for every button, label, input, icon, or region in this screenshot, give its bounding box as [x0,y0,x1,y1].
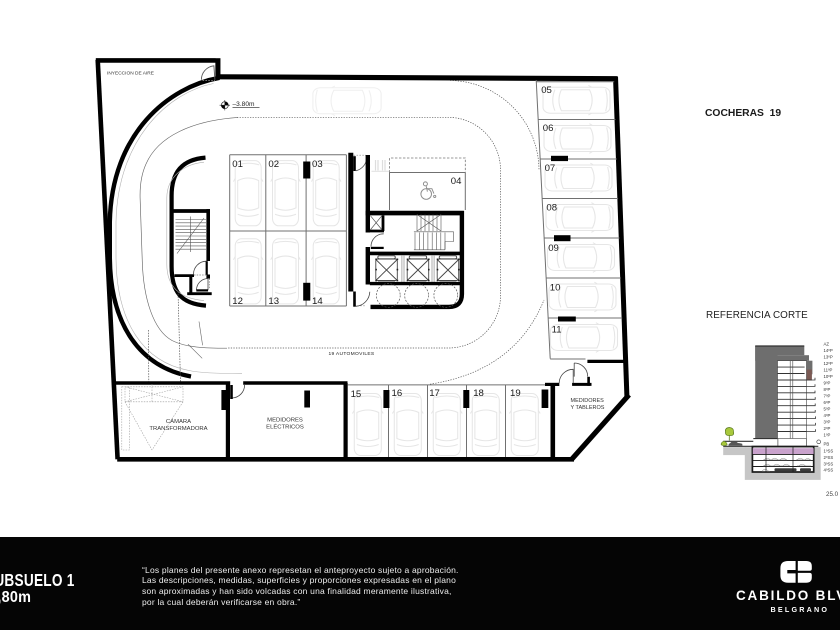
svg-text:08: 08 [546,203,557,214]
svg-text:INYECCION DE AIRE: INYECCION DE AIRE [107,71,154,77]
svg-text:25.0: 25.0 [826,491,839,498]
svg-text:MEDIDORES: MEDIDORES [571,398,605,404]
svg-text:CÁMARA: CÁMARA [166,418,191,425]
svg-text:18: 18 [473,388,484,399]
svg-text:ELÉCTRICOS: ELÉCTRICOS [266,424,304,431]
svg-text:03: 03 [312,159,323,170]
svg-text:TRANSFORMADORA: TRANSFORMADORA [149,426,207,432]
svg-text:7ºP: 7ºP [824,394,831,399]
svg-text:16: 16 [392,388,403,399]
svg-text:05: 05 [541,85,552,96]
svg-text:10: 10 [550,283,561,294]
svg-text:1ºP: 1ºP [824,433,831,438]
svg-text:9ºP: 9ºP [824,381,831,386]
svg-text:01: 01 [232,159,243,170]
svg-text:MEDIDORES: MEDIDORES [267,418,303,424]
svg-text:1ºSS: 1ºSS [824,449,834,454]
svg-text:13ºP: 13ºP [824,355,833,360]
svg-text:3ºP: 3ºP [824,420,831,425]
svg-text:3ºSS: 3ºSS [824,461,834,466]
svg-text:11: 11 [552,325,562,336]
svg-text:–3.80m: –3.80m [233,101,256,108]
svg-text:12ºP: 12ºP [824,361,833,366]
svg-text:19: 19 [510,388,521,399]
svg-text:2ºP: 2ºP [824,426,831,431]
svg-text:14: 14 [312,296,323,307]
svg-text:09: 09 [548,243,559,254]
svg-text:Y TABLEROS: Y TABLEROS [571,405,605,411]
svg-text:02: 02 [268,159,279,170]
svg-text:2ºSS: 2ºSS [824,455,834,460]
svg-text:AZ: AZ [824,342,830,347]
svg-text:13: 13 [268,296,279,307]
svg-text:4ºSS: 4ºSS [824,467,834,472]
svg-text:6ºP: 6ºP [824,400,831,405]
svg-text:14ºP: 14ºP [824,348,833,353]
svg-text:06: 06 [543,123,554,134]
svg-text:04: 04 [451,176,462,187]
svg-text:5ºP: 5ºP [824,407,831,412]
svg-text:10ºP: 10ºP [824,374,833,379]
svg-text:PB: PB [824,442,830,447]
svg-text:12: 12 [232,296,243,307]
svg-text:19 AUTOMOVILES: 19 AUTOMOVILES [329,351,375,357]
svg-text:07: 07 [545,163,556,174]
svg-text:4ºP: 4ºP [824,413,831,418]
svg-text:11ºP: 11ºP [824,368,833,373]
svg-text:15: 15 [351,389,362,400]
svg-text:17: 17 [429,388,440,399]
svg-text:8ºP: 8ºP [824,387,831,392]
